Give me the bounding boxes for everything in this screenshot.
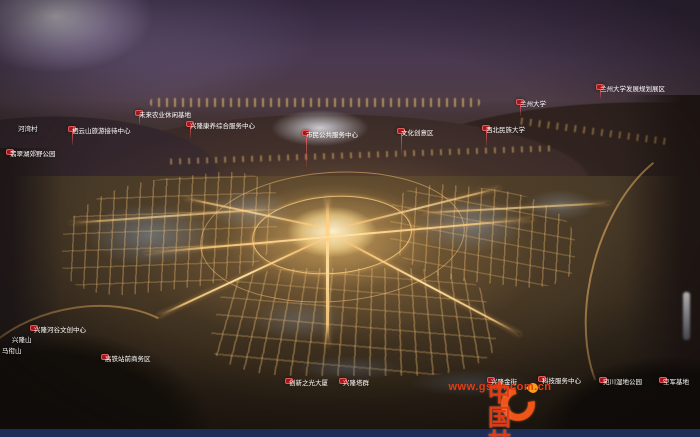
place-tag-text: 兴隆山 [12, 338, 32, 345]
callout-label: 文化创意区 [397, 128, 405, 134]
leader-line [139, 115, 140, 125]
callout-text: 兴隆河谷文创中心 [34, 328, 86, 335]
callout-label: 兰州大学 [516, 99, 524, 105]
callout-text: 市民公共服务中心 [306, 133, 358, 140]
callout-text: 兴隆康养综合服务中心 [190, 124, 255, 131]
callout-label: 创新之光大厦 [285, 378, 293, 384]
callout-label: 市民公共服务中心 [302, 130, 310, 136]
callout-label: 兴隆塔群 [339, 378, 347, 384]
leader-line [72, 131, 73, 145]
callout-label: 兰州大学发展规划展区 [596, 84, 604, 90]
callout-label: 高铁站前商务区 [101, 354, 109, 360]
place-tag-text: 马衔山 [2, 349, 22, 356]
callout-text: 兰州大学 [520, 102, 546, 109]
callout-text: 宛川湿地公园 [603, 380, 642, 387]
callout-text: 高铁站前商务区 [105, 357, 151, 364]
place-tag-text: 河湾村 [18, 127, 38, 134]
site-url: www.gscn.com.cn [448, 381, 551, 394]
callout-text: 创新之光大厦 [289, 381, 328, 388]
aerial-masterplan-rendering: 翡翠湖郊野公园 栖云山旅游接待中心 未来农业休闲基地 兴隆康养综合服务中心 市民… [0, 0, 700, 437]
callout-text: 栖云山旅游接待中心 [72, 129, 131, 136]
bottom-strip [0, 429, 700, 437]
callout-text: 西北民族大学 [486, 128, 525, 135]
callout-text: 空军基地 [663, 380, 689, 387]
vignette-overlay [0, 0, 700, 437]
leader-line [401, 133, 402, 155]
callout-label: 兴隆河谷文创中心 [30, 325, 38, 331]
callout-text: 文化创意区 [401, 131, 434, 138]
leader-line [600, 89, 601, 99]
callout-text: 兰州大学发展规划展区 [600, 87, 665, 94]
callout-text: 未来农业休闲基地 [139, 113, 191, 120]
leader-line [520, 104, 521, 116]
callout-label: 宛川湿地公园 [599, 377, 607, 383]
leader-line [306, 135, 307, 167]
callout-label: 西北民族大学 [482, 125, 490, 131]
leader-line [486, 130, 487, 146]
callout-label: 空军基地 [659, 377, 667, 383]
callout-text: 兴隆塔群 [343, 381, 369, 388]
callout-label: 翡翠湖郊野公园 [6, 149, 14, 155]
callout-text: 翡翠湖郊野公园 [10, 152, 56, 159]
callout-label: 兴隆康养综合服务中心 [186, 121, 194, 127]
callout-label: 未来农业休闲基地 [135, 110, 143, 116]
callout-label: 栖云山旅游接待中心 [68, 126, 76, 132]
leader-line [190, 126, 191, 138]
